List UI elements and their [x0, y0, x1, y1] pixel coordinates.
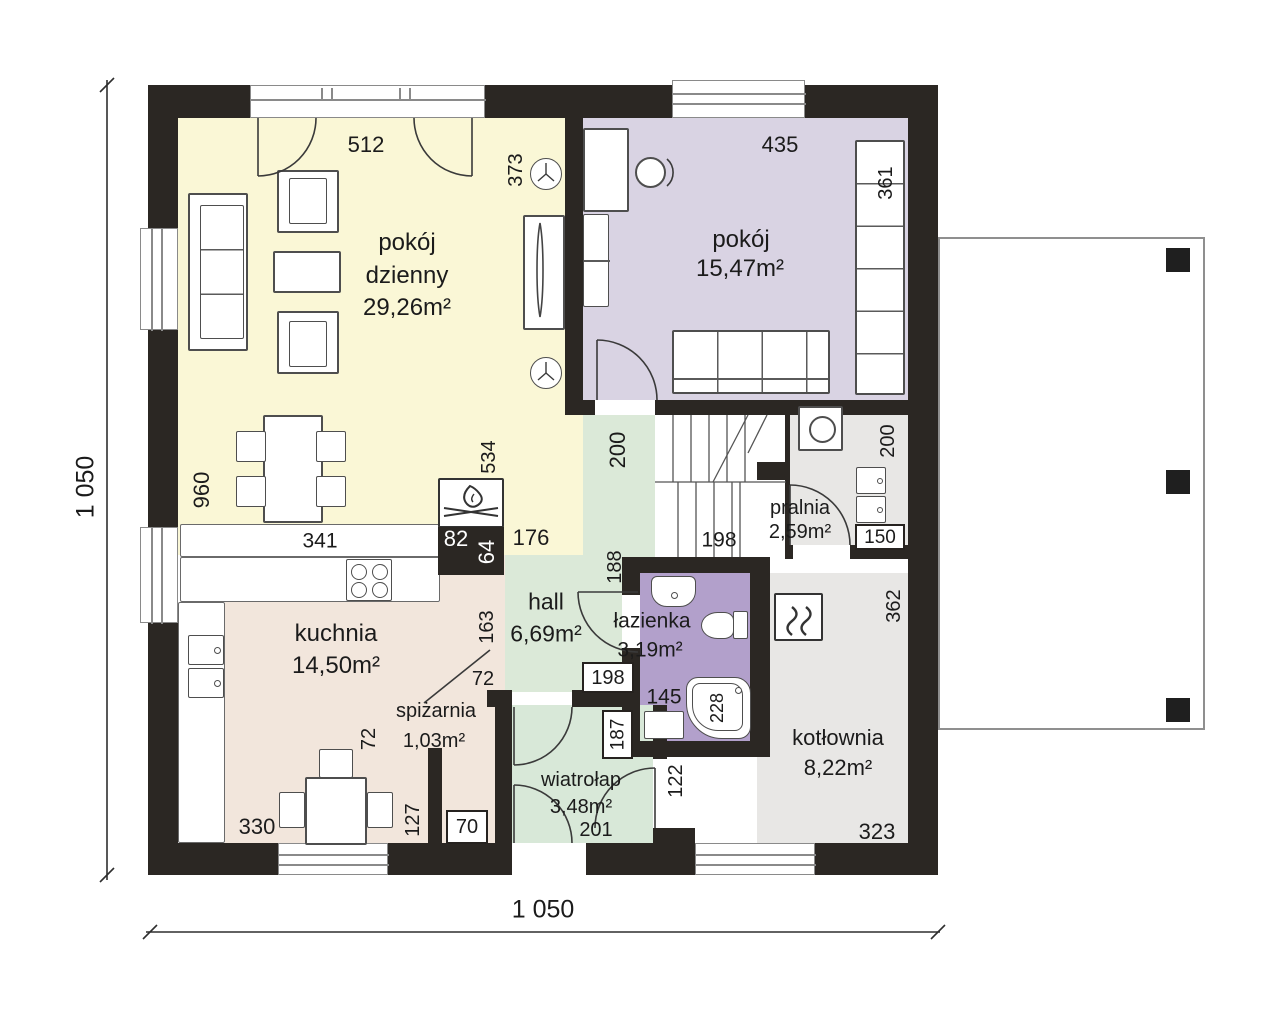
dim-kitchen-right: 163 [477, 610, 497, 643]
french-door-window [250, 85, 485, 118]
dim-chimney-w1: 82 [444, 528, 468, 550]
window-frame-line [151, 229, 153, 331]
tv-cabinet [523, 215, 565, 330]
dim-laundry-right: 200 [878, 424, 898, 457]
boiler-icon [774, 593, 823, 641]
dim-counter: 341 [302, 531, 337, 552]
desk-chair [635, 157, 666, 188]
faucet-dot [877, 507, 883, 513]
wall-stub [565, 400, 595, 415]
drain-dot [735, 687, 742, 694]
armchair [277, 170, 339, 233]
stove [346, 559, 392, 601]
dim-living-top: 512 [348, 134, 385, 156]
wall-bedroom-south [655, 400, 908, 415]
wall-laundry-stub [785, 545, 793, 559]
dim-hall-door: 198 [582, 662, 634, 693]
dim-kitchen-bottom: 330 [239, 816, 276, 838]
wall-pantry [428, 748, 442, 845]
wall-bath-north [622, 557, 770, 573]
wall-left [148, 85, 178, 875]
bedroom-sofa [672, 330, 830, 394]
terrace-post-icon [1166, 698, 1190, 722]
dim-vest-bottom: 201 [579, 820, 612, 840]
living-window [140, 228, 178, 330]
laundry-sink [856, 496, 886, 523]
bathroom-sink [651, 576, 696, 607]
label-living-area: 29,26m² [363, 296, 451, 320]
label-kitchen-name: kuchnia [295, 622, 378, 646]
dim-vest-right: 122 [666, 764, 686, 797]
burner-icon [372, 582, 388, 598]
window-frame-line [696, 854, 816, 856]
dining-table [263, 415, 323, 523]
label-living-name2: dzienny [366, 264, 449, 288]
kitchen-chair [279, 792, 305, 828]
terrace-post-icon [1166, 470, 1190, 494]
label-hall-name: hall [528, 591, 564, 614]
dim-value: 70 [456, 817, 478, 837]
window-mullion [331, 88, 333, 100]
shelf [583, 214, 609, 307]
burner-icon [351, 582, 367, 598]
washer-drum [809, 416, 836, 443]
window-mullion [409, 88, 411, 100]
label-kitchen-area: 14,50m² [292, 654, 380, 678]
dim-laundry-door: 150 [855, 524, 905, 550]
window-frame-line [161, 229, 163, 331]
dim-stair-width: 200 [607, 432, 629, 469]
kitchen-counter [180, 557, 440, 602]
laundry-sink [856, 467, 886, 494]
shower-tray [644, 711, 684, 739]
dim-stair-run: 198 [701, 530, 736, 551]
kitchen-chair [319, 749, 353, 778]
dim-hall-mid: 188 [605, 550, 625, 583]
terrace-post-icon [1166, 248, 1190, 272]
faucet-dot [877, 478, 883, 484]
kitchen-sink-basin [188, 635, 224, 665]
label-bathroom-name: łazienka [613, 611, 690, 632]
dining-chair [236, 476, 266, 507]
toilet-bowl [701, 612, 734, 639]
window-frame-line [151, 528, 153, 624]
dim-pantry-inner: 127 [403, 803, 423, 836]
dim-chimney-w2: 64 [476, 540, 498, 564]
wall-vestibule-west [495, 697, 512, 845]
wall-stair-stub [757, 462, 788, 480]
dim-living-left: 960 [191, 472, 213, 509]
window-frame-line [696, 864, 816, 866]
washing-machine [798, 406, 843, 451]
dim-hall-top: 176 [513, 527, 550, 549]
kitchen-chair [367, 792, 393, 828]
drain-dot [671, 592, 678, 599]
window-frame-line [251, 99, 486, 101]
sofa-back-line [674, 378, 828, 380]
wall-right [908, 85, 938, 875]
wall-bath-south [622, 741, 770, 757]
boiler-window [695, 843, 815, 875]
label-bathroom-area: 3,19m² [617, 640, 682, 661]
window-frame-line [673, 93, 806, 95]
dim-bath-w: 145 [646, 687, 681, 708]
dim-bath-tub: 228 [708, 693, 726, 723]
label-boiler-name: kotłownia [792, 727, 884, 749]
label-pantry-name: spiżarnia [396, 701, 476, 721]
shelf-divider [584, 260, 610, 262]
dim-pantry-door: 70 [446, 810, 488, 844]
entry-door-opening [512, 843, 586, 875]
kitchen-window-left [140, 527, 178, 623]
label-vestibule-name: wiatrołap [541, 770, 621, 790]
wall-living-bedroom [565, 118, 583, 400]
label-boiler-area: 8,22m² [804, 757, 872, 779]
wall-bath-east [750, 557, 770, 757]
label-laundry-area: 2,59m² [769, 522, 831, 542]
label-hall-area: 6,69m² [510, 623, 582, 646]
ceiling-lamp-icon [530, 357, 562, 389]
kitchen-table [305, 777, 367, 845]
desk [583, 128, 629, 212]
dim-boiler-right: 362 [884, 589, 904, 622]
window-mullion [321, 88, 323, 100]
dim-boiler-bottom: 323 [859, 821, 896, 843]
window-frame-line [161, 528, 163, 624]
label-vestibule-area: 3,48m² [550, 797, 612, 817]
drain-dot [214, 680, 221, 687]
dim-pantry-h: 72 [359, 728, 379, 750]
ceiling-lamp-icon [530, 158, 562, 190]
dim-total-height: 1 050 [74, 456, 99, 519]
armchair-seat [289, 178, 327, 224]
drain-dot [214, 647, 221, 654]
armchair [277, 311, 339, 374]
dim-wardrobe: 361 [876, 166, 896, 199]
fireplace-icon [438, 478, 504, 528]
dim-value: 187 [608, 719, 627, 751]
dim-vest-door: 187 [602, 710, 633, 759]
burner-icon [351, 564, 367, 580]
terrace-outline [938, 237, 1205, 730]
window-frame-line [673, 103, 806, 105]
window-frame-line [279, 854, 389, 856]
dining-chair [236, 431, 266, 462]
label-living-name: pokój [378, 231, 435, 255]
dim-total-width: 1 050 [512, 898, 575, 923]
window-mullion [399, 88, 401, 100]
label-laundry-name: pralnia [770, 498, 830, 518]
dim-value: 150 [864, 528, 896, 547]
sofa [188, 193, 248, 351]
kitchen-window-bottom [278, 843, 388, 875]
dim-chimney-h: 534 [479, 440, 499, 473]
toilet-tank [733, 611, 748, 639]
dining-chair [316, 476, 346, 507]
dim-value: 198 [591, 668, 624, 688]
bedroom-window [672, 80, 805, 118]
coffee-table [273, 251, 341, 293]
sofa-cushions [200, 205, 244, 339]
kitchen-sink-basin [188, 668, 224, 698]
dining-chair [316, 431, 346, 462]
label-pantry-area: 1,03m² [403, 731, 465, 751]
dim-bedroom-top: 435 [762, 134, 799, 156]
burner-icon [372, 564, 388, 580]
floor-plan: 150 198 187 70 pokój dzienny 29,26m² pok… [0, 0, 1280, 1018]
label-bedroom-name: pokój [712, 228, 769, 252]
wall-vestibule-east-b [653, 828, 695, 845]
label-bedroom-area: 15,47m² [696, 257, 784, 281]
armchair-seat [289, 321, 327, 367]
window-frame-line [279, 864, 389, 866]
dim-pantry-w: 72 [472, 669, 494, 689]
dim-living-wall: 373 [506, 153, 526, 186]
